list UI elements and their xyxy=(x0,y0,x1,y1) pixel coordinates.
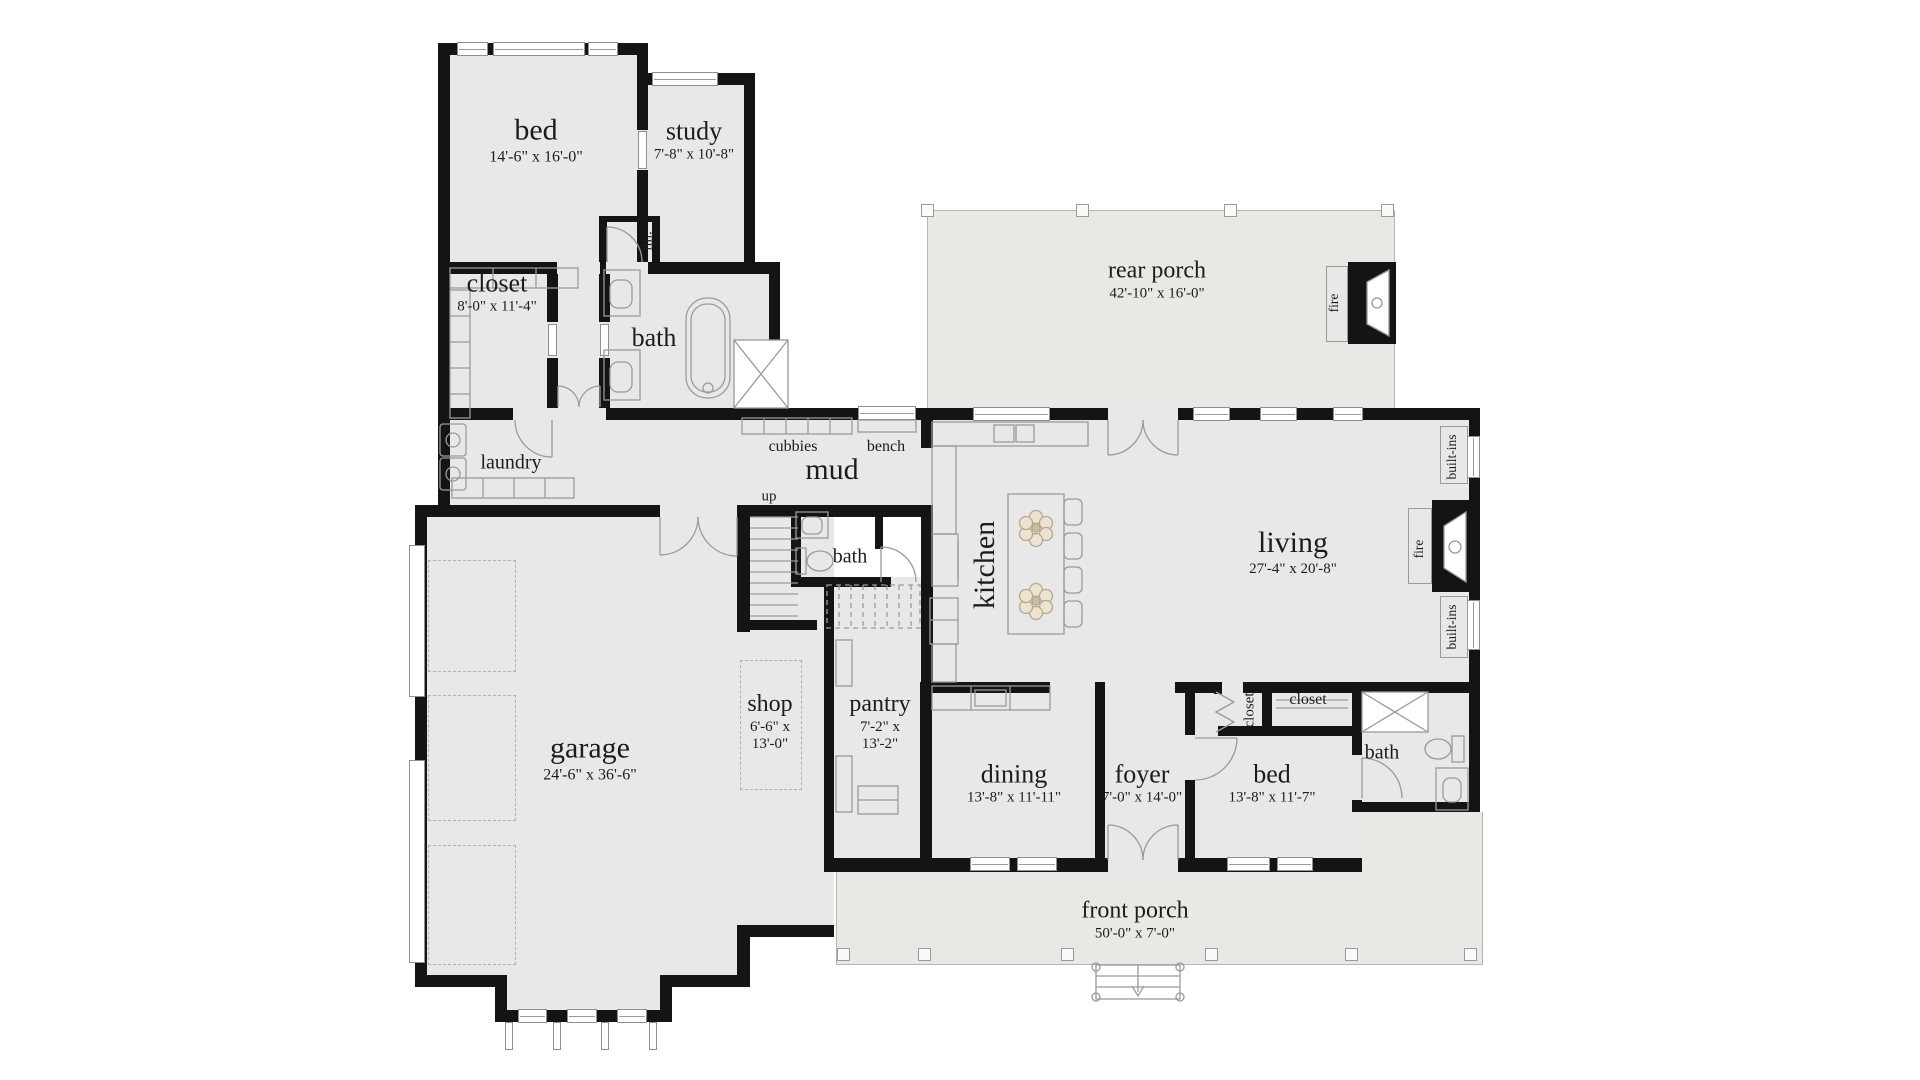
window xyxy=(858,406,916,420)
room-label-study: study 7'-8" x 10'-8" xyxy=(654,116,734,163)
garage-bay-outline xyxy=(428,560,516,672)
room-label-closet1: closet 8'-0" x 11'-4" xyxy=(457,268,537,315)
opening xyxy=(606,262,648,274)
downspout xyxy=(505,1022,513,1050)
window xyxy=(1227,857,1270,871)
window xyxy=(970,857,1010,871)
room-label-mud: mud xyxy=(805,453,858,488)
downspout xyxy=(553,1022,561,1050)
window xyxy=(588,42,618,56)
wall xyxy=(1218,726,1362,736)
room-label-rear-porch: rear porch 42'-10" x 16'-0" xyxy=(1108,258,1206,303)
label-built-ins-bottom: built-ins xyxy=(1444,604,1460,649)
porch-column xyxy=(1464,948,1477,961)
room-name: front porch xyxy=(1081,898,1188,926)
room-label-bed2: bed 13'-8" x 11'-7" xyxy=(1228,759,1315,806)
porch-column xyxy=(1345,948,1358,961)
room-dims: 13'-2" xyxy=(849,736,910,753)
window xyxy=(973,407,1050,421)
downspout xyxy=(601,1022,609,1050)
room-name: kitchen xyxy=(968,521,1003,609)
window xyxy=(567,1009,597,1023)
room-name: study xyxy=(654,116,734,146)
room-name: closet xyxy=(457,268,537,298)
porch-column xyxy=(1205,948,1218,961)
label-text: fire xyxy=(1326,294,1342,313)
garage-door xyxy=(409,760,425,963)
wall xyxy=(415,505,660,517)
room-label-pantry: pantry 7'-2" x 13'-2" xyxy=(849,691,910,753)
room-name: mud xyxy=(805,453,858,488)
label-text: built-ins xyxy=(1444,434,1460,479)
room-name: foyer xyxy=(1102,759,1182,789)
label-up: up xyxy=(762,488,777,505)
wall xyxy=(920,682,932,870)
porch-wrap-fill xyxy=(1362,812,1482,870)
wall xyxy=(824,577,834,870)
room-name: dining xyxy=(967,759,1061,789)
room-name: lin. xyxy=(639,231,656,251)
window xyxy=(1193,407,1230,421)
garage-bay-outline xyxy=(428,695,516,821)
window xyxy=(1277,857,1313,871)
opening xyxy=(513,408,606,420)
wall xyxy=(791,577,891,587)
wall xyxy=(791,505,801,585)
floor-plan: bed 14'-6" x 16'-0" study 7'-8" x 10'-8"… xyxy=(0,0,1920,1080)
room-dims: 7'-2" x xyxy=(849,719,910,736)
room-dims: 27'-4" x 20'-8" xyxy=(1249,561,1337,578)
label-text: bench xyxy=(867,438,905,456)
room-label-bath3: bath xyxy=(1365,742,1399,765)
wall xyxy=(737,925,834,937)
wall xyxy=(1352,802,1480,812)
entry-steps xyxy=(1092,963,1184,1001)
room-label-kitchen: kitchen xyxy=(968,521,1003,609)
wall xyxy=(599,216,660,222)
room-name: closet xyxy=(1289,691,1326,709)
porch-column xyxy=(1076,204,1089,217)
label-text: up xyxy=(762,488,777,505)
wall xyxy=(875,505,883,549)
label-built-ins-top: built-ins xyxy=(1444,434,1460,479)
fireplace xyxy=(1348,262,1396,344)
wall xyxy=(769,262,780,420)
downspout xyxy=(649,1022,657,1050)
study-floor xyxy=(648,73,755,274)
opening xyxy=(557,262,600,274)
label-fire-porch: fire xyxy=(1326,294,1342,313)
porch-column xyxy=(1061,948,1074,961)
label-bench: bench xyxy=(867,438,905,456)
wall xyxy=(920,682,1480,693)
opening xyxy=(1105,682,1175,693)
room-dims: 13'-0" xyxy=(747,736,792,753)
porch-column xyxy=(921,204,934,217)
rear-porch-area xyxy=(927,210,1395,418)
fireplace xyxy=(1432,500,1480,592)
room-name: bath xyxy=(1365,742,1399,765)
room-dims: 14'-6" x 16'-0" xyxy=(489,148,582,166)
wall xyxy=(744,73,755,274)
great-room-floor xyxy=(930,408,1480,682)
room-label-laundry: laundry xyxy=(480,452,541,475)
porch-column xyxy=(1224,204,1237,217)
window xyxy=(1260,407,1297,421)
opening xyxy=(921,448,933,505)
window xyxy=(1466,436,1480,478)
room-dims: 13'-8" x 11'-7" xyxy=(1228,789,1315,806)
garage-bay-outline xyxy=(428,845,516,965)
room-label-bath1: bath xyxy=(632,323,677,353)
room-name: garage xyxy=(543,732,636,767)
room-name: bed xyxy=(1228,759,1315,789)
wall xyxy=(737,620,817,630)
wall xyxy=(415,975,507,987)
porch-column xyxy=(1381,204,1394,217)
room-name: pantry xyxy=(849,691,910,719)
label-fire-living: fire xyxy=(1411,540,1427,559)
window xyxy=(493,42,585,56)
wall xyxy=(737,505,933,517)
room-label-dining: dining 13'-8" x 11'-11" xyxy=(967,759,1061,806)
room-dims: 8'-0" x 11'-4" xyxy=(457,298,537,315)
room-label-foyer: foyer 7'-0" x 14'-0" xyxy=(1102,759,1182,806)
door-panel xyxy=(638,131,647,169)
room-name: bath xyxy=(833,546,867,569)
room-label-front-porch: front porch 50'-0" x 7'-0" xyxy=(1081,898,1188,943)
room-name: shop xyxy=(747,691,792,719)
room-dims: 50'-0" x 7'-0" xyxy=(1081,925,1188,942)
room-name: bed xyxy=(489,114,582,149)
porch-column xyxy=(918,948,931,961)
label-text: fire xyxy=(1411,540,1427,559)
room-label-garage: garage 24'-6" x 36'-6" xyxy=(543,732,636,785)
room-name: closet xyxy=(1241,693,1258,728)
opening xyxy=(1222,682,1243,693)
garage-door xyxy=(409,545,425,697)
wall xyxy=(1214,682,1222,694)
room-dims: 42'-10" x 16'-0" xyxy=(1108,285,1206,302)
wall xyxy=(1469,682,1480,812)
opening xyxy=(1108,408,1178,420)
door-panel xyxy=(600,324,609,356)
wall xyxy=(648,262,780,274)
opening xyxy=(1108,858,1178,872)
room-label-bath2: bath xyxy=(833,546,867,569)
room-dims: 24'-6" x 36'-6" xyxy=(543,766,636,784)
window xyxy=(617,1009,647,1023)
window xyxy=(652,72,718,86)
wall xyxy=(438,43,450,517)
window xyxy=(1333,407,1363,421)
room-name: living xyxy=(1249,526,1337,561)
room-dims: 7'-8" x 10'-8" xyxy=(654,146,734,163)
room-name: rear porch xyxy=(1108,258,1206,286)
room-dims: 13'-8" x 11'-11" xyxy=(967,789,1061,806)
label-text: built-ins xyxy=(1444,604,1460,649)
door-panel xyxy=(548,324,557,356)
room-label-closet3: closet xyxy=(1289,691,1326,709)
room-name: laundry xyxy=(480,452,541,475)
window xyxy=(457,42,488,56)
window xyxy=(1017,857,1057,871)
window xyxy=(518,1009,547,1023)
wall xyxy=(737,505,750,632)
opening xyxy=(1050,682,1095,693)
window xyxy=(1466,600,1480,650)
opening xyxy=(1185,735,1195,780)
room-label-closet2: closet xyxy=(1241,693,1258,728)
room-dims: 6'-6" x xyxy=(747,719,792,736)
room-label-living: living 27'-4" x 20'-8" xyxy=(1249,526,1337,578)
room-label-bed1: bed 14'-6" x 16'-0" xyxy=(489,114,582,167)
wall xyxy=(599,216,607,262)
room-name: bath xyxy=(632,323,677,353)
porch-column xyxy=(837,948,850,961)
opening xyxy=(1352,755,1362,800)
room-label-shop: shop 6'-6" x 13'-0" xyxy=(747,691,792,753)
room-dims: 7'-0" x 14'-0" xyxy=(1102,789,1182,806)
room-label-lin: lin. xyxy=(639,231,656,251)
